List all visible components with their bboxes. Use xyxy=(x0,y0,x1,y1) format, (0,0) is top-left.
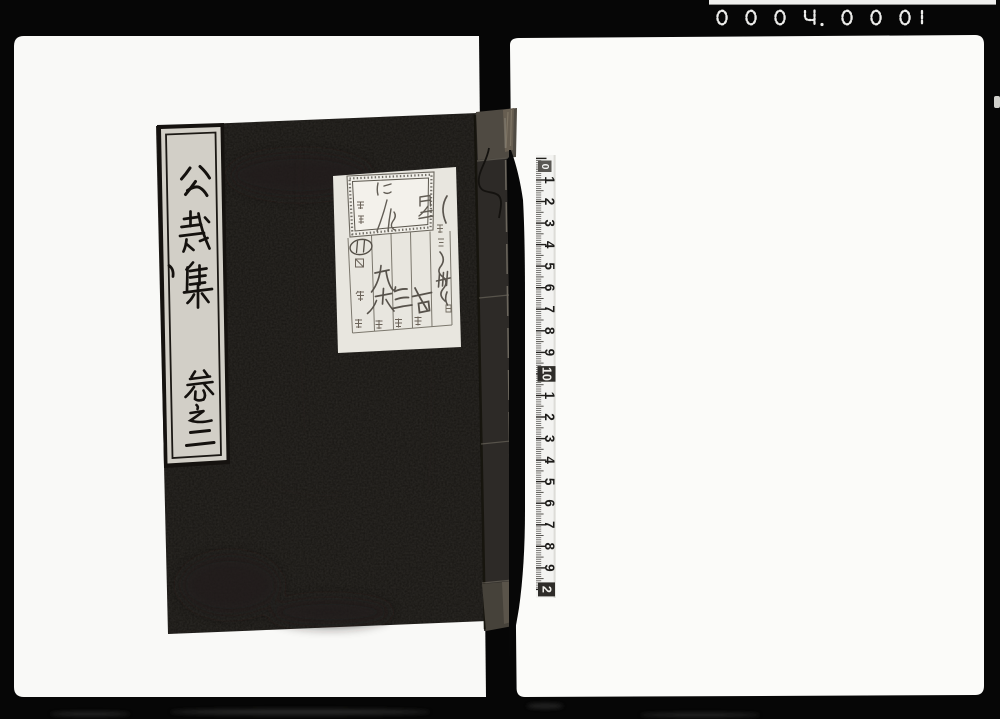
svg-text:3: 3 xyxy=(542,219,557,227)
svg-text:6: 6 xyxy=(542,499,557,507)
svg-text:2: 2 xyxy=(540,586,554,593)
svg-text:5: 5 xyxy=(542,262,557,270)
svg-text:4: 4 xyxy=(542,241,557,249)
svg-text:2: 2 xyxy=(542,413,557,421)
svg-text:9: 9 xyxy=(542,564,557,572)
svg-text:6: 6 xyxy=(542,284,557,292)
svg-text:9: 9 xyxy=(542,349,557,357)
svg-text:1: 1 xyxy=(542,392,557,400)
svg-text:0: 0 xyxy=(539,164,551,170)
svg-text:10: 10 xyxy=(540,367,554,381)
svg-text:7: 7 xyxy=(542,521,557,529)
svg-text:7: 7 xyxy=(542,305,557,313)
svg-text:2: 2 xyxy=(542,198,557,206)
svg-text:3: 3 xyxy=(542,435,557,443)
svg-text:8: 8 xyxy=(542,543,557,551)
svg-text:1: 1 xyxy=(542,176,557,184)
svg-text:8: 8 xyxy=(542,327,557,335)
svg-text:4: 4 xyxy=(542,456,557,464)
svg-text:5: 5 xyxy=(542,478,557,486)
